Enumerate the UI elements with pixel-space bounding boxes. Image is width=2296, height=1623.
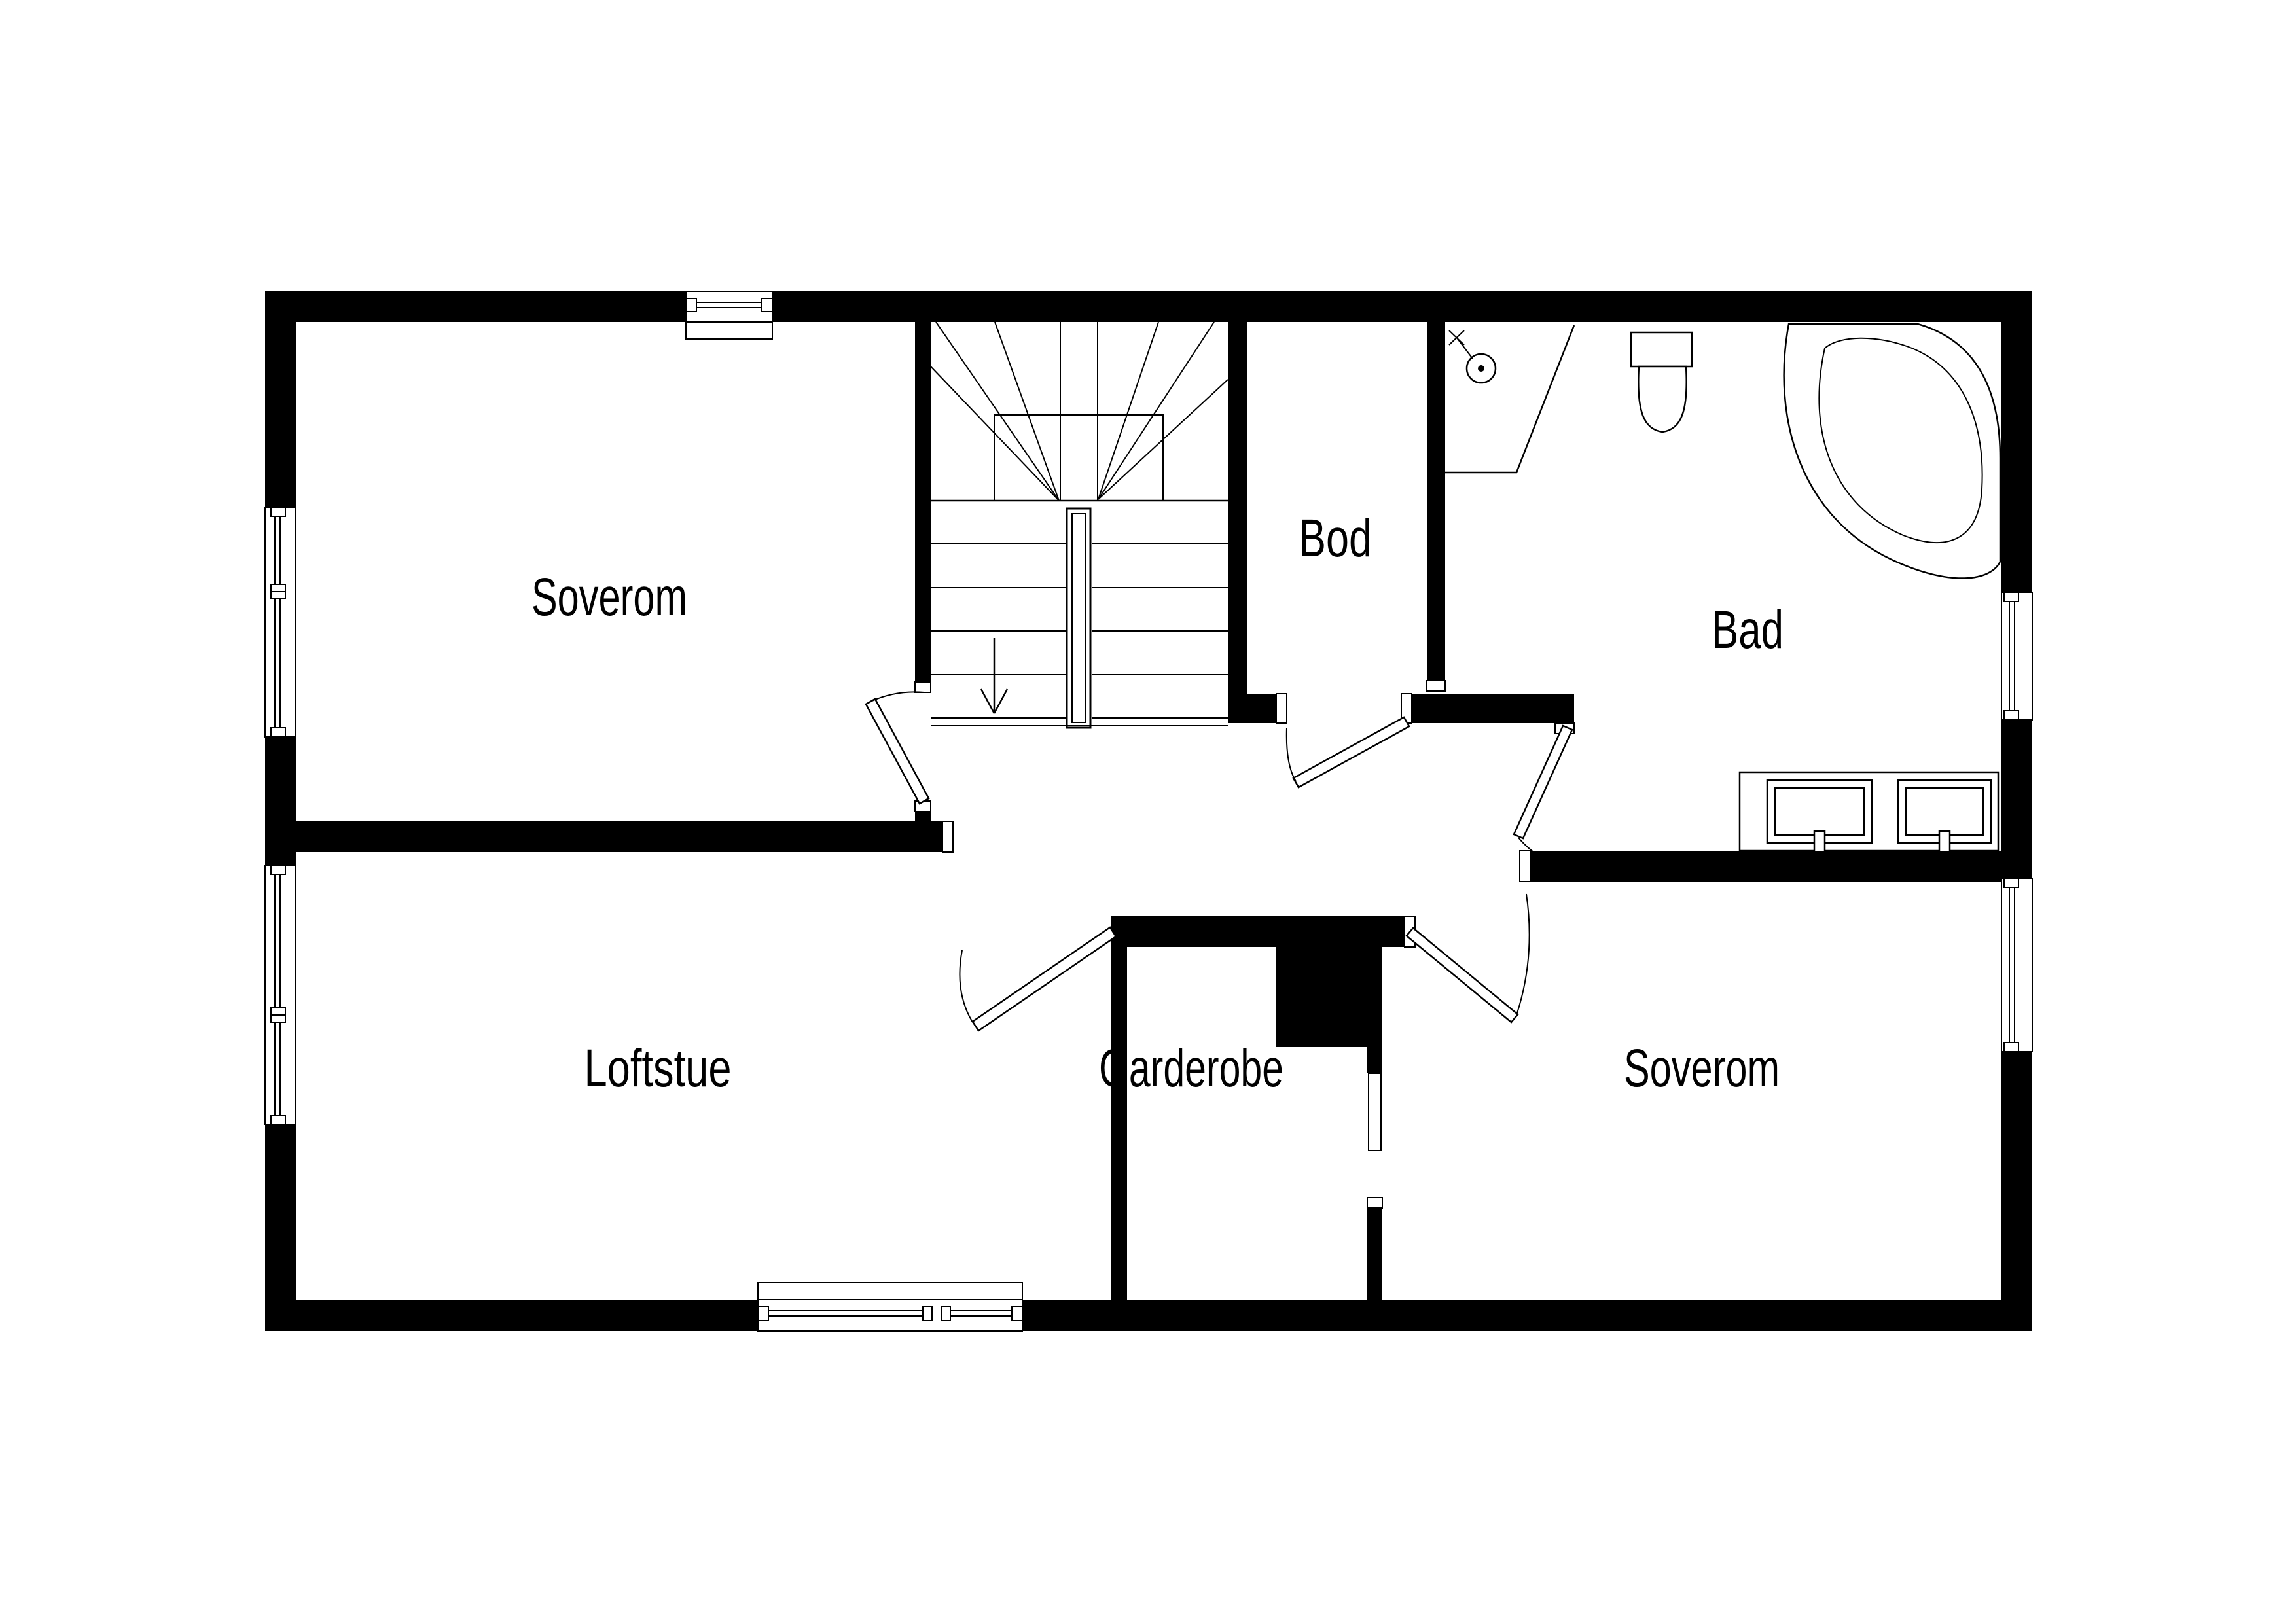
window-right-soverom [2001, 878, 2032, 1052]
jamb-garderobe-pocket [1367, 1198, 1382, 1208]
wall-bod-bad [1427, 322, 1445, 681]
room-label-bod: Bod [1299, 508, 1372, 568]
pocket-sliding-door [1369, 1073, 1381, 1150]
jamb-soverom-top-a [915, 682, 931, 692]
wall-garderobe-soverom-upper [1367, 1047, 1382, 1073]
room-label-loftstue: Loftstue [584, 1039, 732, 1098]
chimney-block [1276, 916, 1382, 1047]
stair-handrail [1067, 508, 1090, 728]
jamb-bod-a [1276, 694, 1287, 723]
window-left-loftstue [265, 865, 296, 1124]
floorplan-svg: Soverom Bod Bad Loftstue Garderobe Sover… [0, 0, 2296, 1623]
wall-bod-bottom-right [1401, 694, 1574, 723]
window-bottom-loftstue [758, 1283, 1022, 1331]
jamb-bad-b [1520, 851, 1530, 882]
room-label-garderobe: Garderobe [1099, 1039, 1283, 1098]
window-right-bad [2001, 592, 2032, 720]
double-sink-vanity [1740, 772, 1998, 852]
room-label-bad: Bad [1712, 600, 1784, 660]
room-label-soverom-bottom: Soverom [1624, 1039, 1780, 1098]
wall-loftstue-garderobe [1111, 947, 1127, 1301]
wall-soverom-loftstue [265, 821, 942, 852]
window-left-soverom [265, 507, 296, 737]
wall-bad-soverom [1530, 851, 2032, 882]
wall-soverom-stairs [915, 322, 931, 682]
wall-stairs-bod [1228, 322, 1247, 694]
floorplan-page: Soverom Bod Bad Loftstue Garderobe Sover… [0, 0, 2296, 1623]
wall-soverom-stub [915, 811, 931, 821]
window-top [686, 291, 772, 339]
jamb-bad-wall-end [1427, 681, 1445, 691]
wall-garderobe-soverom-lower [1367, 1208, 1382, 1301]
jamb-loftstue-a [942, 821, 953, 852]
room-label-soverom-top: Soverom [531, 567, 687, 627]
